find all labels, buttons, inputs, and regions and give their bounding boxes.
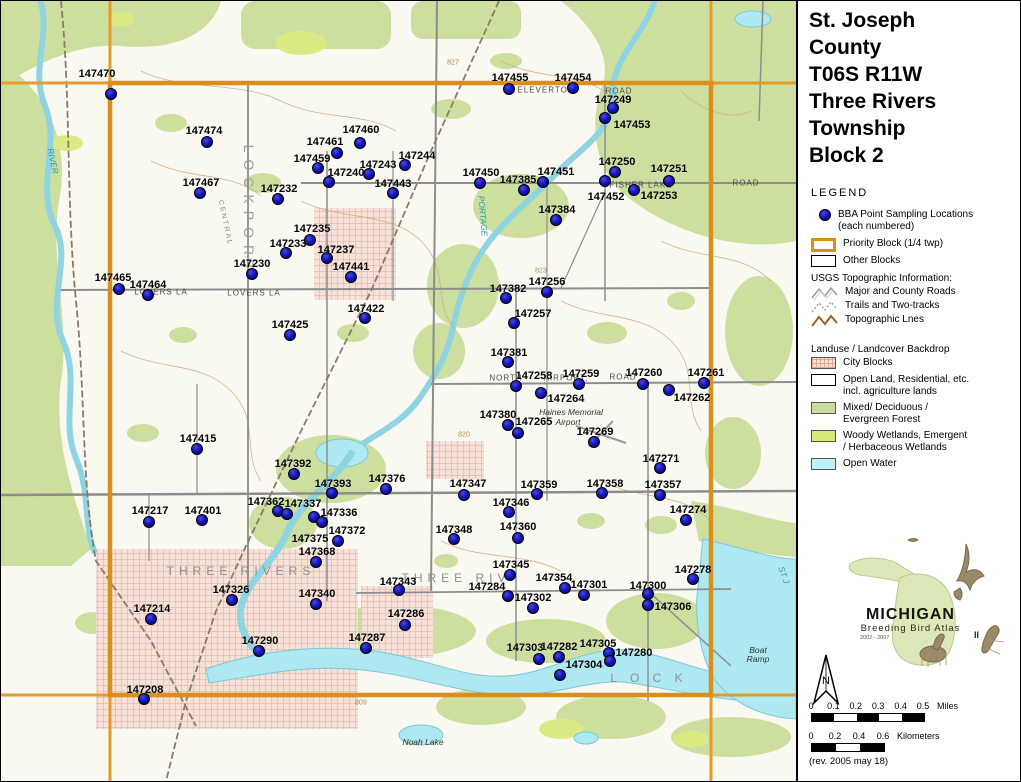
- road-line-icon: [811, 286, 838, 300]
- bba-point-dot[interactable]: [609, 166, 621, 178]
- city-swatch: [811, 357, 836, 369]
- bba-point-label: 147306: [655, 601, 692, 613]
- bba-point-dot[interactable]: [607, 102, 619, 114]
- scale-tick-label: 0.4: [853, 731, 866, 741]
- bba-point-dot[interactable]: [310, 556, 322, 568]
- landuse-item-label: Open Water: [843, 458, 897, 470]
- bba-point-label: 147257: [515, 308, 552, 320]
- map-text-cont-label: 823: [535, 268, 547, 275]
- bba-point-label: 147460: [343, 124, 380, 136]
- bba-point-dot[interactable]: [553, 651, 565, 663]
- scale-bar-segment: [902, 714, 924, 721]
- bba-logo-art: [838, 536, 1013, 671]
- bba-point-dot[interactable]: [321, 252, 333, 264]
- bba-point-dot[interactable]: [359, 312, 371, 324]
- wetland-swatch: [811, 430, 836, 442]
- bba-point-label: 147235: [294, 223, 331, 235]
- map-title-line: Three Rivers: [809, 88, 936, 115]
- bba-point-dot[interactable]: [537, 176, 549, 188]
- bba-point-dot[interactable]: [304, 234, 316, 246]
- scale-km-bar: [811, 743, 885, 752]
- bba-point-dot[interactable]: [316, 516, 328, 528]
- scale-tick-label: 0.6: [877, 731, 890, 741]
- bba-point-dot[interactable]: [331, 147, 343, 159]
- map-title-line: County: [809, 34, 936, 61]
- bba-point-dot[interactable]: [448, 533, 460, 545]
- bba-point-dot[interactable]: [246, 268, 258, 280]
- bba-point-dot[interactable]: [663, 175, 675, 187]
- bba-point-dot[interactable]: [512, 427, 524, 439]
- scale-tick-label: 0.1: [827, 701, 840, 711]
- bba-point-dot[interactable]: [105, 88, 117, 100]
- bba-point-label: 147251: [651, 163, 688, 175]
- bba-point-dot[interactable]: [573, 378, 585, 390]
- landuse-item-label: City Blocks: [843, 357, 892, 369]
- scale-bar-segment: [812, 714, 834, 721]
- scale-miles-bar: [811, 713, 925, 722]
- bba-point-dot[interactable]: [503, 83, 515, 95]
- bba-point-dot[interactable]: [559, 582, 571, 594]
- bba-point-dot[interactable]: [512, 532, 524, 544]
- map-title-line: Township: [809, 115, 936, 142]
- bba-point-dot[interactable]: [554, 669, 566, 681]
- scale-bar-segment: [879, 714, 901, 721]
- bba-point-dot[interactable]: [284, 329, 296, 341]
- map-text-road-label: ELEVERTON: [517, 86, 574, 95]
- bba-point-dot[interactable]: [535, 387, 547, 399]
- bba-point-label: 147258: [516, 370, 553, 382]
- bba-point-dot[interactable]: [502, 590, 514, 602]
- bba-point-dot[interactable]: [550, 214, 562, 226]
- bba-point-dot[interactable]: [687, 573, 699, 585]
- usgs-item-label: Major and County Roads: [845, 286, 956, 298]
- landuse-item-label: Woody Wetlands, Emergent/ Herbaceous Wet…: [843, 430, 967, 454]
- bba-point-label: 147262: [674, 392, 711, 404]
- map-text-cont-label: 827: [447, 60, 459, 67]
- bba-point-label: 147375: [292, 533, 329, 545]
- bba-legend-line2: (each numbered): [838, 221, 914, 232]
- legend-item-city: City Blocks: [811, 357, 892, 369]
- bba-point-dot[interactable]: [599, 112, 611, 124]
- usgs-header: USGS Topographic Information:: [811, 273, 952, 284]
- map-text-road-label: LOVERS LA: [227, 289, 280, 298]
- bba-point-dot[interactable]: [380, 483, 392, 495]
- bba-point-dot[interactable]: [226, 594, 238, 606]
- map-text-cont-label: 809: [355, 700, 367, 707]
- bba-point-dot[interactable]: [518, 184, 530, 196]
- bba-point-dot[interactable]: [637, 378, 649, 390]
- usgs-item-label: Topographic Lnes: [845, 314, 924, 326]
- forest-swatch: [811, 402, 836, 414]
- bba-point-dot[interactable]: [508, 317, 520, 329]
- map-text-road-label: ROAD: [732, 179, 759, 188]
- logo-numeral: II: [974, 630, 979, 640]
- bba-point-dot[interactable]: [354, 137, 366, 149]
- bba-point-dot[interactable]: [201, 136, 213, 148]
- bba-point-dot[interactable]: [458, 489, 470, 501]
- bba-point-dot[interactable]: [145, 613, 157, 625]
- bba-point-dot[interactable]: [253, 645, 265, 657]
- other-blocks-label: Other Blocks: [843, 255, 900, 267]
- bba-point-dot[interactable]: [113, 283, 125, 295]
- bba-point-dot[interactable]: [654, 462, 666, 474]
- trail-line-icon: [811, 300, 838, 314]
- legend-item-open: Open Land, Residential, etc.incl. agricu…: [811, 374, 969, 398]
- bba-point-dot[interactable]: [345, 271, 357, 283]
- scale-unit-label: Miles: [937, 701, 958, 711]
- other-blocks-swatch: [811, 255, 836, 267]
- bba-point-dot[interactable]: [310, 598, 322, 610]
- bba-point-dot[interactable]: [663, 384, 675, 396]
- open-swatch: [811, 374, 836, 386]
- priority-block-label: Priority Block (1/4 twp): [843, 238, 943, 250]
- bba-point-label: 147459: [294, 153, 331, 165]
- landuse-item-label: Open Land, Residential, etc.incl. agricu…: [843, 374, 969, 398]
- scale-tick-label: 0.2: [829, 731, 842, 741]
- bba-point-label: 147264: [548, 393, 585, 405]
- legend-item-bba-points: BBA Point Sampling Locations (each numbe…: [811, 209, 973, 233]
- logo-name: MICHIGAN: [838, 606, 983, 624]
- points-layer: 1474701474551474541472491474531474741474…: [1, 1, 796, 781]
- bba-point-label: 147452: [588, 191, 625, 203]
- bba-point-dot[interactable]: [628, 184, 640, 196]
- bba-point-dot[interactable]: [323, 176, 335, 188]
- bba-point-dot[interactable]: [363, 168, 375, 180]
- bba-point-dot[interactable]: [474, 177, 486, 189]
- legend-item-other-blocks: Other Blocks: [811, 255, 900, 267]
- scale-tick-label: 0.5: [917, 701, 930, 711]
- scale-tick-label: 0.4: [894, 701, 907, 711]
- scale-bar-segment: [857, 714, 879, 721]
- bba-point-dot[interactable]: [360, 642, 372, 654]
- bba-point-dot[interactable]: [596, 487, 608, 499]
- bba-point-dot[interactable]: [196, 514, 208, 526]
- bba-point-dot[interactable]: [654, 489, 666, 501]
- bba-point-label: 147385: [500, 174, 537, 186]
- bba-point-dot[interactable]: [504, 569, 516, 581]
- scale-bar-segment: [812, 744, 836, 751]
- usgs-item-label: Trails and Two-tracks: [845, 300, 939, 312]
- bba-point-label: 147470: [79, 68, 116, 80]
- bba-point-dot[interactable]: [698, 377, 710, 389]
- landuse-header: Landuse / Landcover Backdrop: [811, 344, 949, 355]
- map-title: St. JosephCountyT06S R11WThree RiversTow…: [809, 7, 936, 169]
- bba-point-dot[interactable]: [281, 508, 293, 520]
- bba-point-dot[interactable]: [194, 187, 206, 199]
- map-text-city-label: THREE RIVERS: [167, 564, 316, 578]
- scale-tick-label: 0: [808, 731, 813, 741]
- scale-tick-label: 0: [808, 701, 813, 711]
- bba-point-label: 147265: [516, 416, 553, 428]
- map-text-place-label: Noah Lake: [402, 737, 443, 747]
- priority-block-swatch: [811, 238, 836, 252]
- topo-line-icon: [811, 314, 838, 328]
- map-text-place-label: Ramp: [747, 654, 770, 664]
- north-arrow: N: [808, 653, 844, 705]
- bba-point-dot[interactable]: [680, 514, 692, 526]
- scale-tick-label: 0.3: [872, 701, 885, 711]
- scale-bar-segment: [836, 744, 860, 751]
- water-swatch: [811, 458, 836, 470]
- bba-point-dot[interactable]: [312, 162, 324, 174]
- bba-point-label: 147253: [641, 190, 678, 202]
- bba-point-dot[interactable]: [399, 159, 411, 171]
- bba-point-dot[interactable]: [191, 443, 203, 455]
- legend-panel: St. JosephCountyT06S R11WThree RiversTow…: [798, 1, 1020, 781]
- map-title-line: T06S R11W: [809, 61, 936, 88]
- legend-item-priority-block: Priority Block (1/4 twp): [811, 238, 943, 252]
- landuse-item-label: Mixed/ Deciduous /Evergreen Forest: [843, 402, 928, 426]
- bba-point-dot[interactable]: [578, 589, 590, 601]
- bba-point-label: 147301: [571, 579, 608, 591]
- bba-point-label: 147453: [614, 119, 651, 131]
- bba-point-dot[interactable]: [326, 487, 338, 499]
- bba-point-dot[interactable]: [502, 356, 514, 368]
- legend-item-wetland: Woody Wetlands, Emergent/ Herbaceous Wet…: [811, 430, 967, 454]
- scale-unit-label: Kilometers: [897, 731, 940, 741]
- bba-point-label: 147280: [616, 647, 653, 659]
- map-text-cont-label: 820: [458, 432, 470, 439]
- bba-point-dot[interactable]: [527, 602, 539, 614]
- scale-bar-segment: [860, 744, 884, 751]
- legend-item-water: Open Water: [811, 458, 897, 470]
- legend-item-topo: Topographic Lnes: [811, 314, 924, 328]
- bba-point-dot[interactable]: [531, 488, 543, 500]
- bba-point-label: 147284: [469, 581, 506, 593]
- bba-logo: MICHIGAN Breeding Bird Atlas 2002 - 2007…: [838, 536, 1013, 671]
- map-title-line: Block 2: [809, 142, 936, 169]
- bba-legend-line1: BBA Point Sampling Locations: [838, 209, 973, 220]
- bba-point-dot[interactable]: [541, 286, 553, 298]
- logo-subtitle: Breeding Bird Atlas: [838, 623, 983, 634]
- logo-years: 2002 - 2007: [860, 635, 889, 641]
- legend-item-trail: Trails and Two-tracks: [811, 300, 939, 314]
- bba-point-dot[interactable]: [399, 619, 411, 631]
- bba-point-dot[interactable]: [642, 599, 654, 611]
- bba-point-dot[interactable]: [280, 247, 292, 259]
- bba-point-dot[interactable]: [604, 655, 616, 667]
- bba-point-dot[interactable]: [138, 693, 150, 705]
- north-label: N: [808, 675, 844, 687]
- bba-point-dot[interactable]: [393, 584, 405, 596]
- revision-note: (rev. 2005 may 18): [809, 756, 888, 767]
- bba-point-dot[interactable]: [387, 187, 399, 199]
- bba-point-dot[interactable]: [143, 516, 155, 528]
- bba-point-dot[interactable]: [567, 82, 579, 94]
- bba-point-dot[interactable]: [510, 380, 522, 392]
- bba-point-legend-icon: [819, 209, 831, 221]
- bba-point-label: 147465: [95, 272, 132, 284]
- legend-item-forest: Mixed/ Deciduous /Evergreen Forest: [811, 402, 928, 426]
- map-sheet: ELEVERTONROADFISHER LAKEROADLOVERS LALOV…: [0, 0, 1021, 782]
- map-title-line: St. Joseph: [809, 7, 936, 34]
- bba-point-dot[interactable]: [533, 653, 545, 665]
- bba-point-dot[interactable]: [332, 535, 344, 547]
- bba-point-dot[interactable]: [599, 175, 611, 187]
- map-text-city-label: L O C K: [610, 671, 687, 685]
- bba-point-dot[interactable]: [142, 289, 154, 301]
- scale-tick-label: 0.2: [850, 701, 863, 711]
- legend-title: LEGEND: [811, 187, 868, 199]
- scale-bar-segment: [834, 714, 856, 721]
- legend-item-road: Major and County Roads: [811, 286, 956, 300]
- bba-point-dot[interactable]: [503, 506, 515, 518]
- bba-point-dot[interactable]: [272, 193, 284, 205]
- map-canvas[interactable]: ELEVERTONROADFISHER LAKEROADLOVERS LALOV…: [1, 1, 798, 781]
- bba-point-dot[interactable]: [288, 468, 300, 480]
- bba-point-dot[interactable]: [588, 436, 600, 448]
- bba-point-dot[interactable]: [500, 292, 512, 304]
- bba-point-label: 147304: [566, 659, 603, 671]
- bba-point-label: 147347: [450, 478, 487, 490]
- bba-point-label: 147474: [186, 125, 223, 137]
